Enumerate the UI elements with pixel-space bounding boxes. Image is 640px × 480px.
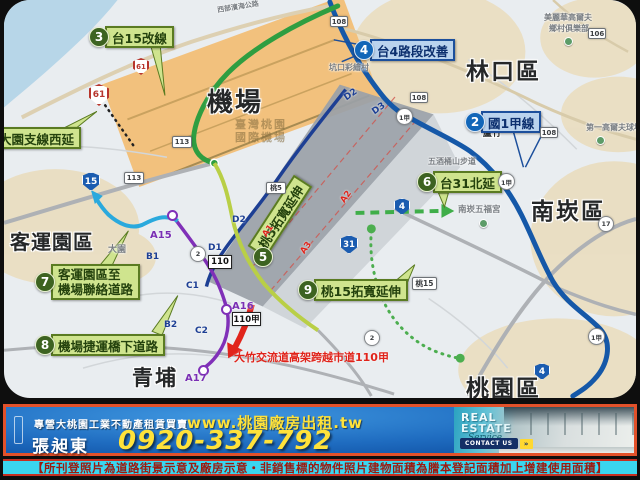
landmark-kengkou: 坑口彩繪村	[329, 63, 369, 73]
project-2-label: 國1甲線	[481, 111, 541, 133]
station-c1: C1	[186, 281, 199, 291]
project-6-label: 台31北延	[433, 171, 502, 193]
station-a15: A15	[150, 230, 172, 241]
landmark-golf-club-2: 鄉村俱樂部	[549, 24, 589, 34]
shield-1jia: 1甲	[588, 328, 605, 345]
region-qingpu: 青埔	[132, 362, 178, 392]
project-2-badge: 2	[465, 112, 485, 132]
project-4: 4 台4路段改善	[354, 39, 455, 61]
station-a17: A17	[185, 373, 207, 384]
mrt-station-dot	[167, 210, 178, 221]
shield-108: 108	[330, 16, 348, 27]
map: 機場 臺灣桃園 國際機場 林口區 南崁區 桃園區 青埔 客運園區 蘆竹 大園 3…	[4, 0, 636, 398]
region-linkou: 林口區	[466, 52, 541, 86]
map-pin-icon	[564, 37, 573, 46]
project-9-label: 桃15拓寬延伸	[314, 279, 408, 301]
banner-logo-mark	[14, 416, 23, 444]
project-9-badge: 9	[298, 280, 318, 300]
banner-phone-number: 0920-337-792	[118, 426, 333, 456]
red-annotation: 大竹交流道高架跨越市道110甲	[234, 349, 389, 365]
banner-warehouse-photo: REAL ESTATE Service CONTACT US »	[454, 407, 634, 453]
contact-us-label: CONTACT US	[460, 438, 518, 449]
shield-2: 2	[364, 330, 380, 346]
project-dayuan-branch: 大園支線西延	[4, 127, 81, 149]
project-2: 2 國1甲線	[465, 111, 541, 133]
airport-subtitle-2: 國際機場	[235, 131, 287, 144]
project-4-badge: 4	[354, 40, 374, 60]
ad-banner: 專營大桃園工業不動產租賃買賣 www.桃園廠房出租.tw 張昶東 0920-33…	[3, 404, 637, 456]
project-5-badge: 5	[253, 247, 273, 267]
project-9: 9 桃15拓寬延伸	[298, 279, 408, 301]
project-6-badge: 6	[417, 172, 437, 192]
project-8: 8 機場捷運橋下道路	[35, 334, 165, 356]
disclaimer-text: 【所刊登照片為道路街景示意及廠房示意‧非銷售標的物件照片建物面積為謄本登記面積加…	[32, 460, 608, 476]
shield-17: 17	[598, 216, 614, 232]
station-d2: D2	[232, 215, 246, 225]
shield-tao5: 桃5	[266, 182, 286, 194]
landmark-wujiu-trail: 五酒桶山步道	[428, 157, 476, 167]
shield-108: 108	[540, 127, 558, 138]
shield-106: 106	[588, 28, 606, 39]
project-7-label: 客運園區至 機場聯絡道路	[51, 264, 140, 300]
map-pin-icon	[479, 219, 488, 228]
project-7-label-line2: 機場聯絡道路	[58, 282, 133, 297]
project-7-label-line1: 客運園區至	[58, 267, 133, 282]
landmark-golf-course: 第一高爾夫球場	[586, 123, 636, 133]
shield-113: 113	[124, 172, 144, 184]
landmark-golf-club-1: 美麗華高爾夫	[544, 13, 592, 23]
map-pin-icon	[596, 136, 605, 145]
station-a16: A16	[232, 301, 254, 312]
project-3: 3 台15改線	[89, 26, 174, 48]
project-dayuan-label: 大園支線西延	[4, 127, 81, 149]
region-taoyuan: 桃園區	[466, 369, 541, 398]
shield-2: 2	[190, 246, 206, 262]
region-nankan: 南崁區	[531, 192, 606, 226]
airport-subtitle-1: 臺灣桃園	[235, 118, 287, 131]
project-3-label: 台15改線	[105, 26, 174, 48]
region-dayuan: 大園	[108, 245, 126, 255]
shield-113: 113	[172, 136, 192, 148]
region-airport: 機場	[207, 82, 263, 119]
disclaimer-strip: 【所刊登照片為道路街景示意及廠房示意‧非銷售標的物件照片建物面積為謄本登記面積加…	[3, 459, 637, 476]
project-3-badge: 3	[89, 27, 109, 47]
mrt-station-dot	[221, 304, 232, 315]
station-d1: D1	[208, 243, 222, 253]
project-4-label: 台4路段改善	[370, 39, 455, 61]
project-8-label: 機場捷運橋下道路	[51, 334, 165, 356]
station-c2: C2	[195, 326, 208, 336]
photo-columns	[515, 413, 634, 434]
project-7: 7 客運園區至 機場聯絡道路	[35, 264, 140, 300]
shield-110: 110	[208, 255, 232, 269]
shield-tao15: 桃15	[412, 277, 437, 290]
flyer: 機場 臺灣桃園 國際機場 林口區 南崁區 桃園區 青埔 客運園區 蘆竹 大園 3…	[0, 0, 640, 480]
project-7-badge: 7	[35, 272, 55, 292]
shield-1jia: 1甲	[396, 108, 413, 125]
contact-us-button[interactable]: CONTACT US »	[460, 438, 533, 449]
station-b1: B1	[146, 252, 159, 262]
shield-110jia: 110甲	[232, 312, 261, 326]
shield-108: 108	[410, 92, 428, 103]
banner-agent-name: 張昶東	[32, 432, 89, 457]
shield-1jia: 1甲	[498, 173, 515, 190]
region-keyun: 客運園區	[10, 226, 94, 255]
project-6: 6 台31北延	[417, 171, 502, 193]
station-b2: B2	[164, 320, 177, 330]
contact-arrow-icon: »	[520, 439, 533, 449]
project-8-badge: 8	[35, 335, 55, 355]
landmark-wufu-temple: 南崁五福宮	[458, 205, 501, 215]
